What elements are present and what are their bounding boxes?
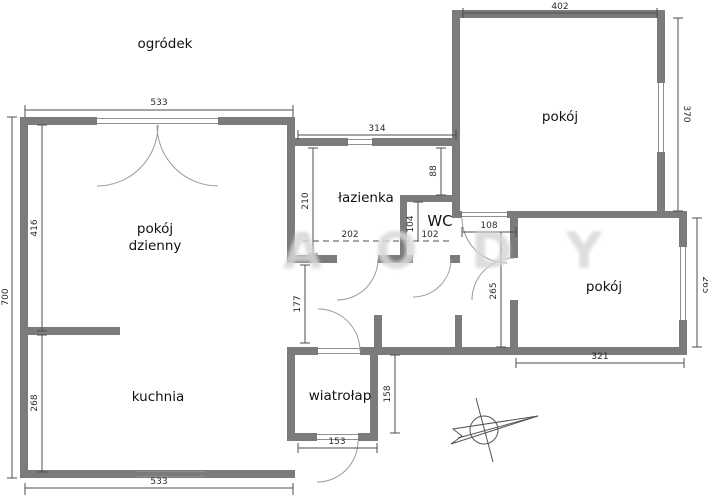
garden-door-arc-left [97,125,158,186]
wall [287,433,317,441]
wall [507,211,687,218]
dim-vestibule-height: 158 [383,385,393,402]
wall [679,218,687,247]
dim-bathroom-top-width: 314 [368,124,385,134]
wall [657,18,665,83]
north-arrow-icon [451,398,538,462]
wall-closet-stub [374,315,382,347]
dim-kitchen-height: 268 [30,394,40,411]
wall [20,117,97,125]
dim-bathroom-nook: 88 [429,165,439,177]
wall [657,152,665,211]
dim-living-height: 416 [30,219,40,236]
vestibule-door-arc [318,309,360,351]
living-room-label-line1: pokój [137,221,173,237]
dim-bottom-width: 533 [150,477,167,487]
dim-top-width: 533 [150,98,167,108]
wall [295,138,348,146]
wall [452,18,460,211]
wall [679,320,687,347]
room-top-label: pokój [542,109,578,125]
dim-room-bottom-height: 265 [700,276,708,293]
dim-room-bottom-width: 321 [591,352,608,362]
wall-closet-stub [455,315,462,347]
garden-door-arc-right [157,125,218,186]
dim-room-top-width: 402 [551,2,568,12]
wall [20,117,28,478]
bathroom-label: łazienka [338,190,394,206]
wall [358,433,378,441]
watermark: A O D Y [283,222,620,280]
vestibule-label: wiatrołap [309,388,372,404]
dim-room-top-height: 370 [681,105,691,122]
dim-hall-height: 265 [489,282,499,299]
dim-hall-opening: 177 [293,295,303,312]
wall [372,138,460,146]
room-bottom-label: pokój [586,279,622,295]
wall [360,347,687,355]
floor-plan: 533 402 370 314 700 416 268 210 88 202 1… [0,0,708,500]
wall [287,347,295,441]
floor-plan-canvas: 533 402 370 314 700 416 268 210 88 202 1… [0,0,708,500]
living-room-label-line2: dzienny [129,238,182,254]
wall [218,117,295,125]
dim-bathroom-height: 210 [301,192,311,209]
wall [452,211,462,218]
garden-label: ogródek [137,36,192,52]
kitchen-label: kuchnia [132,389,185,405]
dim-outer-height: 700 [1,288,11,305]
entrance-door-arc [317,441,358,482]
dim-vestibule-width: 153 [328,437,345,447]
wc-label: WC [427,212,452,230]
wall [510,300,518,347]
wall-wc-top [400,195,460,202]
